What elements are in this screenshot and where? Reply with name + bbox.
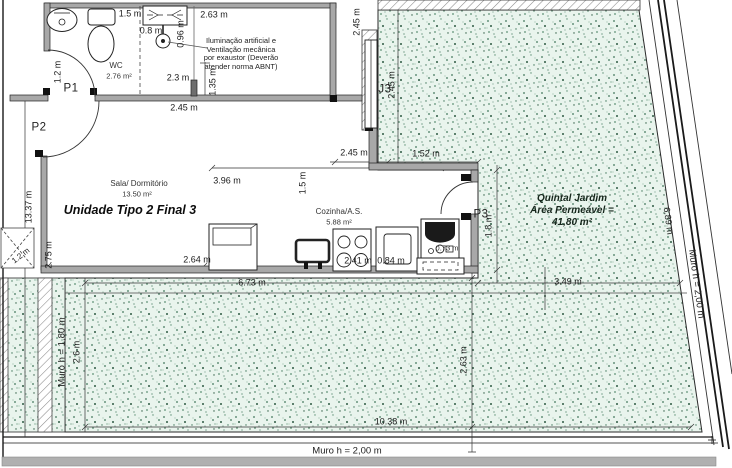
unit-title: Unidade Tipo 2 Final 3	[64, 204, 196, 217]
door-p3-arc	[441, 182, 473, 214]
dim-sala-2-64: 2.64 m	[183, 256, 211, 265]
door-p2-arc	[43, 101, 99, 157]
sink-icon	[47, 9, 77, 32]
plan-linework	[0, 0, 732, 468]
room-cozinha-label: Cozinha/A.S.	[316, 208, 363, 216]
dim-p3-1-8: 1.8 m	[485, 215, 494, 238]
room-wc-area: 2.76 m²	[106, 72, 131, 80]
dim-top-2-63: 2.63 m	[200, 11, 228, 20]
dim-left-13-37: 13.37 m	[25, 191, 34, 224]
dim-koz-0-84: 0.84 m	[377, 257, 405, 266]
dim-wc-2-3: 2.3 m	[167, 74, 190, 83]
dim-left-2-6: 2.6 m	[73, 341, 82, 364]
ventilation-note: Iluminação artificial e Ventilação mecân…	[196, 37, 286, 71]
dim-sala-3-96: 3.96 m	[213, 177, 241, 186]
dim-garden-v-2-45: 2.45 m	[388, 71, 397, 99]
room-wc-label: WC	[109, 62, 122, 70]
floor-plan: 1.5 m 2.63 m 0.8 m 0.96 m WC 2.76 m² 2.3…	[0, 0, 732, 468]
dim-koz-2-41: 2.41 m	[344, 257, 372, 266]
muro-bottom-label: Muro h = 2,00 m	[312, 446, 381, 456]
door-p1-label: P1	[63, 83, 78, 95]
room-sala-label: Sala/ Dormitório	[110, 180, 167, 188]
dim-h-1-52: 1.52 m	[412, 150, 440, 159]
dim-garden-2-63: 2.63 m	[460, 346, 469, 374]
dim-vent-1-35: 1.35 m	[209, 68, 218, 96]
room-cozinha-area: 5.88 m²	[326, 218, 351, 226]
dim-shower-0-8: 0.8 m	[140, 27, 163, 36]
garden-name: Quintal Jardim	[537, 194, 607, 204]
toilet-icon	[88, 9, 115, 62]
dim-bot-6-73: 6.73 m	[238, 279, 266, 288]
room-sala-area: 13.50 m²	[122, 190, 152, 198]
door-p2-label: P2	[31, 122, 46, 134]
dim-bot-3-49: 3.49 m	[554, 278, 582, 287]
dim-tr-2-45: 2.45 m	[353, 8, 362, 36]
cooktop-bench-icon	[296, 240, 329, 269]
dim-shower-0-96: 0.96 m	[177, 20, 186, 48]
dim-top-1-5: 1.5 m	[119, 10, 142, 19]
dim-h-2-45: 2.45 m	[340, 149, 368, 158]
window-j3-icon	[365, 40, 377, 128]
dim-wc-2-45: 2.45 m	[170, 104, 198, 113]
kitchen-fixtures	[209, 219, 464, 274]
garden-line2: Área Permeável =	[530, 206, 614, 216]
kitchen-counter-icon	[209, 224, 257, 270]
muro-left-label: Muro h = 1,80 m	[57, 317, 67, 386]
dim-p1-1-2: 1.2 m	[54, 61, 63, 84]
dim-koz-0-73: 0.73 m	[436, 244, 459, 252]
dim-bot-10-38: 10.38 m	[375, 418, 408, 427]
note-line-4: atender norma ABNT)	[196, 63, 286, 72]
garden-area-value: 41,80 m²	[552, 218, 592, 228]
dim-koz-1-5: 1.5 m	[299, 172, 308, 195]
dim-sala-2-75: 2.75 m	[45, 241, 54, 269]
